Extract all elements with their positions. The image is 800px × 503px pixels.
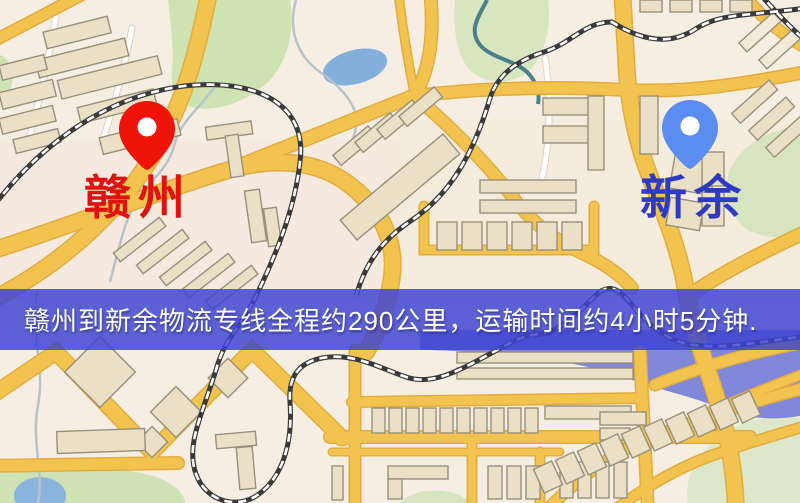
destination-city-label: 新余 bbox=[640, 176, 748, 223]
route-info-text: 赣州到新余物流专线全程约290公里，运输时间约4小时5分钟. bbox=[24, 301, 758, 338]
origin-pin-hole bbox=[138, 118, 157, 137]
destination-pin-hole bbox=[681, 117, 700, 136]
map-background bbox=[0, 0, 800, 503]
origin-city-label: 赣州 bbox=[84, 176, 192, 223]
route-info-banner: 赣州到新余物流专线全程约290公里，运输时间约4小时5分钟. bbox=[0, 289, 800, 350]
route-map: 赣州 新余 赣州到新余物流专线全程约290公里，运输时间约4小时5分钟. bbox=[0, 0, 800, 503]
